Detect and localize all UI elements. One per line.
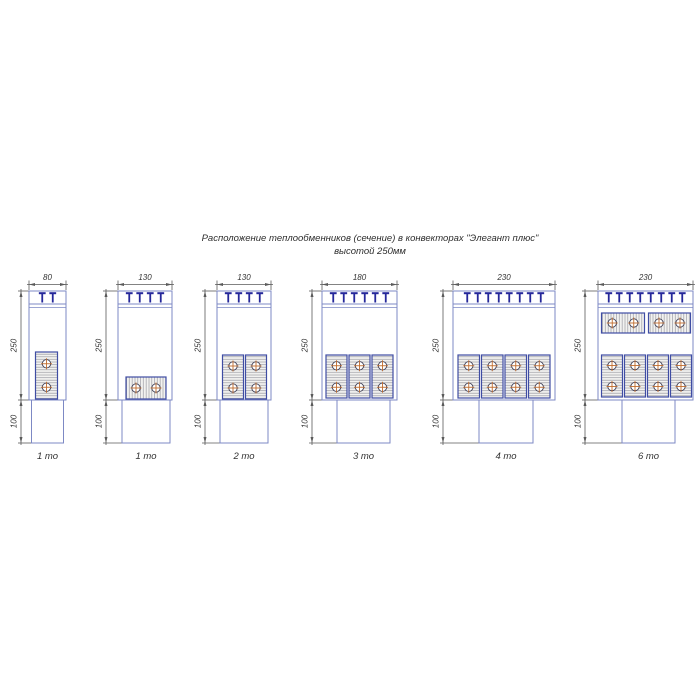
dim-arrow <box>60 283 66 286</box>
dim-arrow <box>311 291 314 297</box>
dim-arrow <box>20 437 23 443</box>
height-dim-label: 250 <box>95 338 104 353</box>
width-dim-label: 130 <box>237 273 251 282</box>
dim-arrow <box>311 394 314 400</box>
width-dim-label: 130 <box>138 273 152 282</box>
duct-dim-label: 100 <box>194 414 203 428</box>
dim-arrow <box>105 291 108 297</box>
height-dim-label: 250 <box>574 338 583 353</box>
dim-arrow <box>442 394 445 400</box>
convector-section-1: 802501001 то <box>10 273 69 462</box>
unit-count-label: 6 то <box>638 451 659 462</box>
duct-dim-label: 100 <box>432 414 441 428</box>
dim-arrow <box>322 283 328 286</box>
air-duct <box>622 400 675 443</box>
dim-arrow <box>584 291 587 297</box>
dim-arrow <box>118 283 124 286</box>
convector-section-5: 2302501004 то <box>432 273 558 462</box>
dim-arrow <box>442 400 445 406</box>
dim-arrow <box>311 400 314 406</box>
dim-arrow <box>105 437 108 443</box>
air-duct <box>220 400 268 443</box>
dim-arrow <box>584 400 587 406</box>
dim-arrow <box>442 437 445 443</box>
dim-arrow <box>453 283 459 286</box>
dim-arrow <box>204 394 207 400</box>
dim-arrow <box>442 291 445 297</box>
dim-arrow <box>265 283 271 286</box>
dim-arrow <box>166 283 172 286</box>
duct-dim-label: 100 <box>10 414 19 428</box>
dim-arrow <box>204 437 207 443</box>
width-dim-label: 230 <box>496 273 511 282</box>
duct-dim-label: 100 <box>574 414 583 428</box>
air-duct <box>122 400 170 443</box>
convector-section-6: 2302501006 то <box>574 273 696 462</box>
height-dim-label: 250 <box>301 338 310 353</box>
unit-count-label: 1 то <box>37 451 58 462</box>
dim-arrow <box>204 291 207 297</box>
unit-count-label: 3 то <box>353 451 374 462</box>
width-dim-label: 80 <box>43 273 52 282</box>
dim-arrow <box>20 400 23 406</box>
dim-arrow <box>584 394 587 400</box>
dim-arrow <box>105 400 108 406</box>
height-dim-label: 250 <box>432 338 441 353</box>
dim-arrow <box>311 437 314 443</box>
drawing-canvas: Расположение теплообменников (сечение) в… <box>0 0 700 700</box>
air-duct <box>479 400 533 443</box>
dim-arrow <box>584 437 587 443</box>
dim-arrow <box>549 283 555 286</box>
dim-arrow <box>20 291 23 297</box>
unit-count-label: 2 то <box>232 451 254 462</box>
air-duct <box>337 400 390 443</box>
height-dim-label: 250 <box>10 338 19 353</box>
dim-arrow <box>204 400 207 406</box>
duct-dim-label: 100 <box>95 414 104 428</box>
duct-dim-label: 100 <box>301 414 310 428</box>
height-dim-label: 250 <box>194 338 203 353</box>
air-duct <box>32 400 64 443</box>
dim-arrow <box>217 283 223 286</box>
width-dim-label: 230 <box>638 273 653 282</box>
unit-count-label: 1 то <box>135 451 156 462</box>
convector-sections-drawing: 802501001 то1302501001 то1302501002 то18… <box>0 0 700 700</box>
convector-section-2: 1302501001 то <box>95 273 175 462</box>
dim-arrow <box>687 283 693 286</box>
convector-section-4: 1802501003 то <box>301 273 400 462</box>
dim-arrow <box>391 283 397 286</box>
convector-section-3: 1302501002 то <box>194 273 274 462</box>
dim-arrow <box>105 394 108 400</box>
width-dim-label: 180 <box>353 273 367 282</box>
dim-arrow <box>598 283 604 286</box>
unit-count-label: 4 то <box>495 451 516 462</box>
dim-arrow <box>29 283 35 286</box>
dim-arrow <box>20 394 23 400</box>
